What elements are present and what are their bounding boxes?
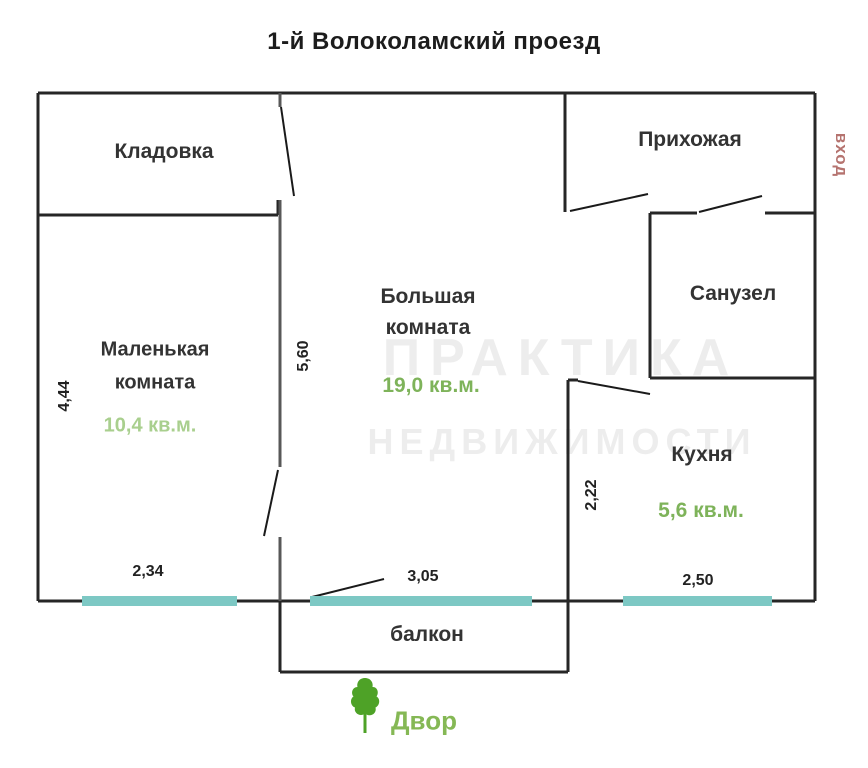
big-room-label-line2: комната [386, 316, 471, 340]
dim-kitchen-width: 2,50 [682, 572, 713, 590]
window-markers [82, 596, 772, 606]
dim-big-room-height: 5,60 [295, 340, 313, 371]
kitchen-area: 5,6 кв.м. [658, 499, 744, 523]
yard-label: Двор [391, 706, 457, 737]
window-marker [623, 596, 772, 606]
entrance-label: вход [831, 133, 851, 177]
small-room-area: 10,4 кв.м. [104, 415, 197, 438]
door-swings [264, 107, 762, 597]
dim-balcony-width: 3,05 [407, 568, 438, 586]
hallway-label: Прихожая [638, 128, 742, 152]
big-room-label-line1: Большая [380, 285, 475, 309]
floorplan-page: 1-й Волоколамский проезд ПРАКТИКА НЕДВИЖ… [0, 0, 868, 768]
big-room-area: 19,0 кв.м. [382, 374, 479, 398]
balcony-label: балкон [390, 623, 464, 647]
dim-small-room-width: 2,34 [132, 563, 163, 581]
window-marker [310, 596, 532, 606]
kitchen-label: Кухня [671, 443, 732, 467]
small-room-label-line2: комната [115, 372, 196, 395]
dim-kitchen-height: 2,22 [583, 479, 601, 510]
tree-icon [346, 677, 384, 735]
bathroom-label: Санузел [690, 282, 776, 306]
small-room-label-line1: Маленькая [101, 339, 210, 362]
window-marker [82, 596, 237, 606]
dim-small-room-height: 4,44 [56, 380, 74, 411]
storage-room-label: Кладовка [114, 140, 213, 164]
